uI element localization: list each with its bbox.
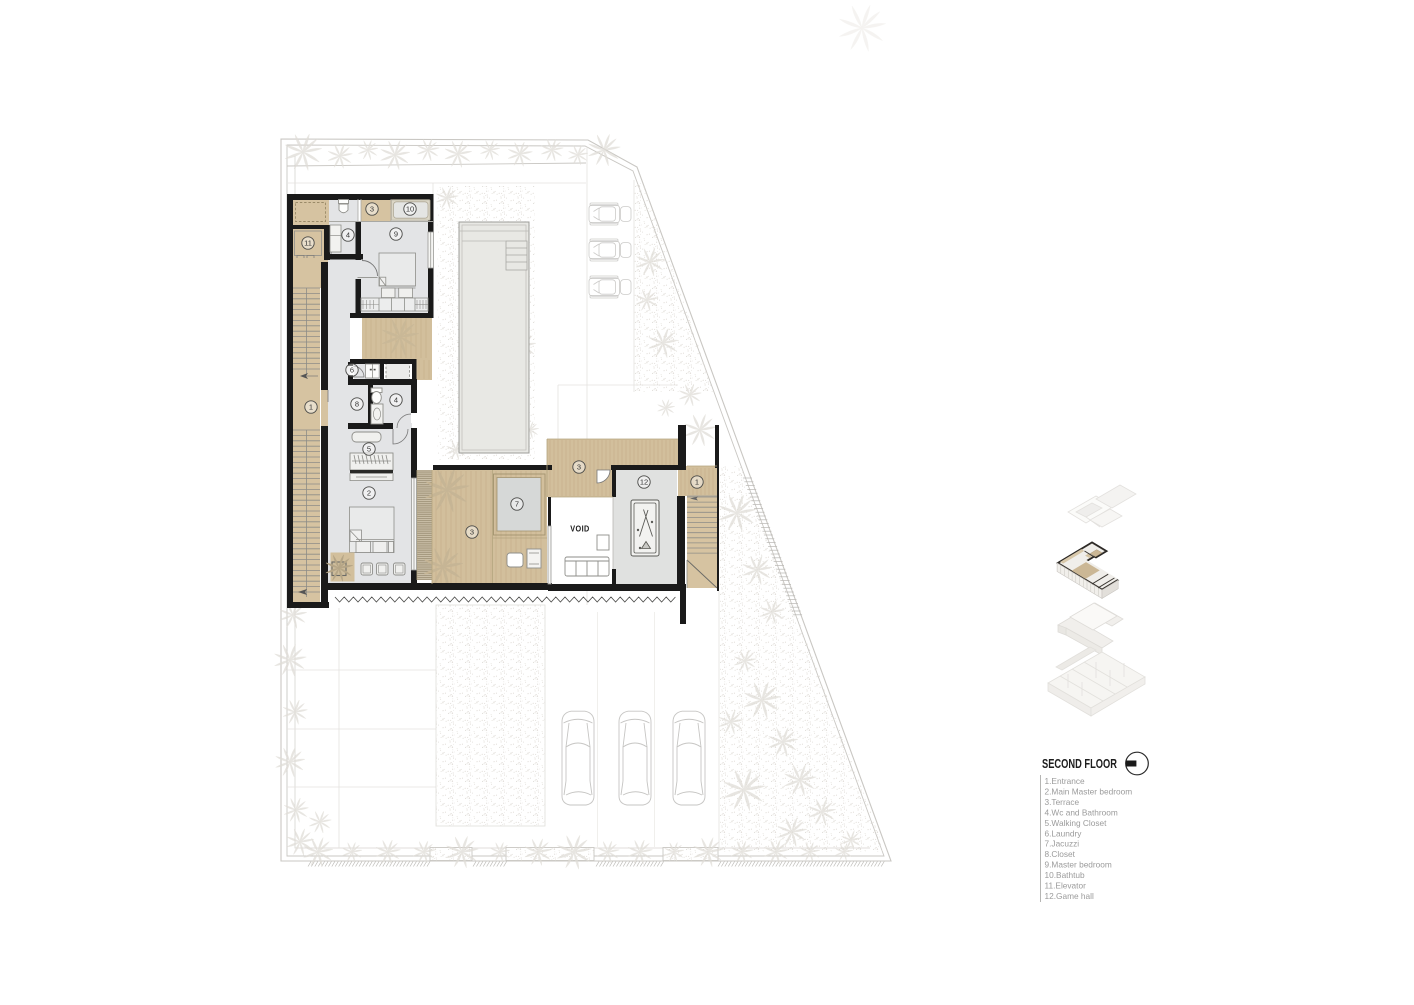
svg-text:3: 3 bbox=[470, 528, 474, 537]
svg-text:11.Elevator: 11.Elevator bbox=[1045, 881, 1087, 891]
svg-text:6: 6 bbox=[350, 366, 354, 375]
svg-text:2: 2 bbox=[367, 489, 371, 498]
svg-text:3.Terrace: 3.Terrace bbox=[1045, 797, 1080, 807]
svg-text:9: 9 bbox=[394, 230, 398, 239]
svg-text:12: 12 bbox=[640, 478, 648, 487]
svg-text:4: 4 bbox=[346, 231, 350, 240]
svg-text:7: 7 bbox=[515, 500, 519, 509]
svg-text:3: 3 bbox=[577, 463, 581, 472]
svg-text:10.Bathtub: 10.Bathtub bbox=[1045, 870, 1086, 880]
svg-text:2.Main Master bedroom: 2.Main Master bedroom bbox=[1045, 786, 1133, 796]
svg-text:8: 8 bbox=[355, 400, 359, 409]
svg-text:1: 1 bbox=[309, 403, 313, 412]
svg-text:7.Jacuzzi: 7.Jacuzzi bbox=[1045, 839, 1080, 849]
svg-text:10: 10 bbox=[406, 205, 414, 214]
svg-text:VOID: VOID bbox=[570, 525, 590, 534]
svg-text:9.Master bedroom: 9.Master bedroom bbox=[1045, 860, 1112, 870]
svg-text:3: 3 bbox=[370, 205, 374, 214]
svg-text:12.Game hall: 12.Game hall bbox=[1045, 891, 1095, 901]
svg-text:6.Laundry: 6.Laundry bbox=[1045, 828, 1083, 838]
svg-text:8.Closet: 8.Closet bbox=[1045, 849, 1076, 859]
svg-text:4.Wc and Bathroom: 4.Wc and Bathroom bbox=[1045, 807, 1118, 817]
svg-text:1: 1 bbox=[695, 478, 699, 487]
svg-text:11: 11 bbox=[304, 239, 312, 248]
svg-text:4: 4 bbox=[394, 396, 398, 405]
svg-text:5: 5 bbox=[367, 445, 371, 454]
svg-text:SECOND FLOOR: SECOND FLOOR bbox=[1042, 757, 1117, 771]
svg-text:1.Entrance: 1.Entrance bbox=[1045, 776, 1086, 786]
svg-text:5.Walking Closet: 5.Walking Closet bbox=[1045, 818, 1108, 828]
